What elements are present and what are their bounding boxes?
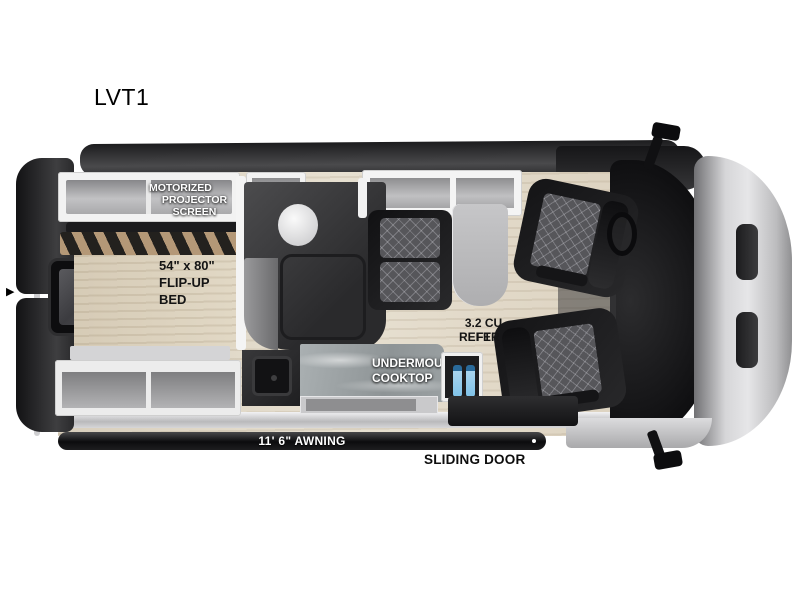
sink-drain <box>271 375 277 381</box>
shower-teak-floor <box>280 254 366 340</box>
bottle <box>453 365 462 397</box>
refrigerator-interior <box>445 356 479 398</box>
storage-cubby <box>62 372 146 408</box>
shelf-interior <box>306 399 416 411</box>
dinette-table <box>452 204 508 306</box>
awning-end-cap <box>532 439 536 443</box>
dinette-bench-seat <box>368 210 452 310</box>
bottle <box>466 365 475 397</box>
awning-bar: 11' 6" AWNING <box>58 432 546 450</box>
storage-cubby <box>151 372 235 408</box>
under-counter-shelf <box>300 396 438 414</box>
hood-vent <box>736 224 758 280</box>
front-body-skirt <box>566 418 712 448</box>
projector-screen-label: MOTORIZED PROJECTOR SCREEN <box>58 182 240 194</box>
hood <box>694 156 792 446</box>
sink <box>252 356 292 396</box>
bench-cushion <box>380 218 440 258</box>
model-title: LVT1 <box>94 84 149 111</box>
flip-up-bed-label: 54" x 80" FLIP-UP BED <box>74 258 244 292</box>
toilet <box>278 204 318 246</box>
storage-ledge <box>70 346 230 360</box>
refrigerator <box>441 352 483 402</box>
floorplan-canvas: LVT1 ▶ MOTORIZED PROJECTOR SCREEN <box>0 0 800 600</box>
projector-screen-cabinet: MOTORIZED PROJECTOR SCREEN <box>58 172 240 222</box>
flip-up-bed-slats <box>60 232 240 255</box>
side-mirror-icon <box>653 450 683 471</box>
storage-bench <box>55 360 241 416</box>
bench-cushion <box>380 262 440 302</box>
hood-vent <box>736 312 758 368</box>
bathroom-wall <box>358 178 367 218</box>
cooktop-label: UNDERMOUNT COOKTOP <box>300 356 444 371</box>
sliding-door-label: SLIDING DOOR <box>424 452 584 467</box>
steering-wheel <box>607 212 637 256</box>
sliding-door-step <box>448 396 578 426</box>
refer-label: 3.2 CU FT REFER <box>410 316 508 330</box>
awning-label: 11' 6" AWNING <box>258 434 345 448</box>
rear-entry-arrow-icon: ▶ <box>6 285 14 298</box>
